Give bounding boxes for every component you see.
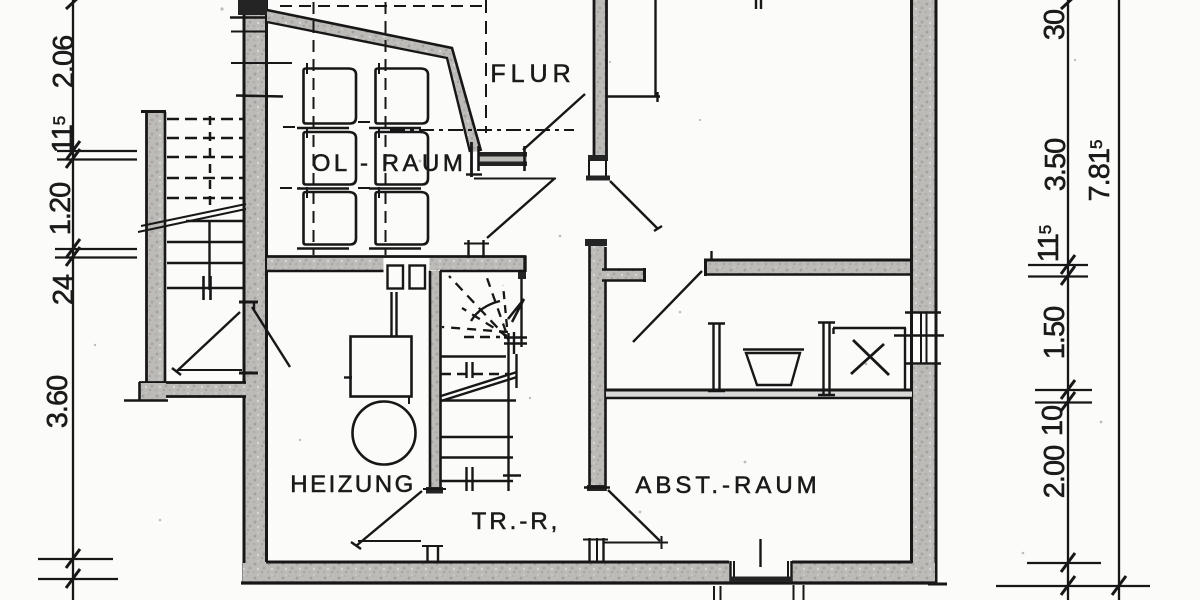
svg-text:FLUR: FLUR bbox=[490, 60, 575, 88]
svg-text:10: 10 bbox=[1037, 406, 1069, 436]
svg-text:TR.-R,: TR.-R, bbox=[472, 508, 561, 535]
svg-text:2.00: 2.00 bbox=[1039, 446, 1071, 498]
svg-text:HEIZUNG: HEIZUNG bbox=[290, 471, 416, 498]
svg-text:1.50: 1.50 bbox=[1039, 307, 1071, 359]
svg-text:30: 30 bbox=[1039, 10, 1071, 40]
svg-text:3.50: 3.50 bbox=[1040, 139, 1072, 191]
svg-text:7.815: 7.815 bbox=[1084, 140, 1116, 201]
svg-text:2.06: 2.06 bbox=[48, 36, 80, 88]
svg-text:3.60: 3.60 bbox=[42, 376, 74, 428]
svg-text:ABST.-RAUM: ABST.-RAUM bbox=[635, 472, 820, 499]
svg-text:1.20: 1.20 bbox=[45, 183, 77, 235]
svg-text:24: 24 bbox=[48, 274, 80, 305]
svg-text:OL - RAUM: OL - RAUM bbox=[312, 150, 467, 177]
